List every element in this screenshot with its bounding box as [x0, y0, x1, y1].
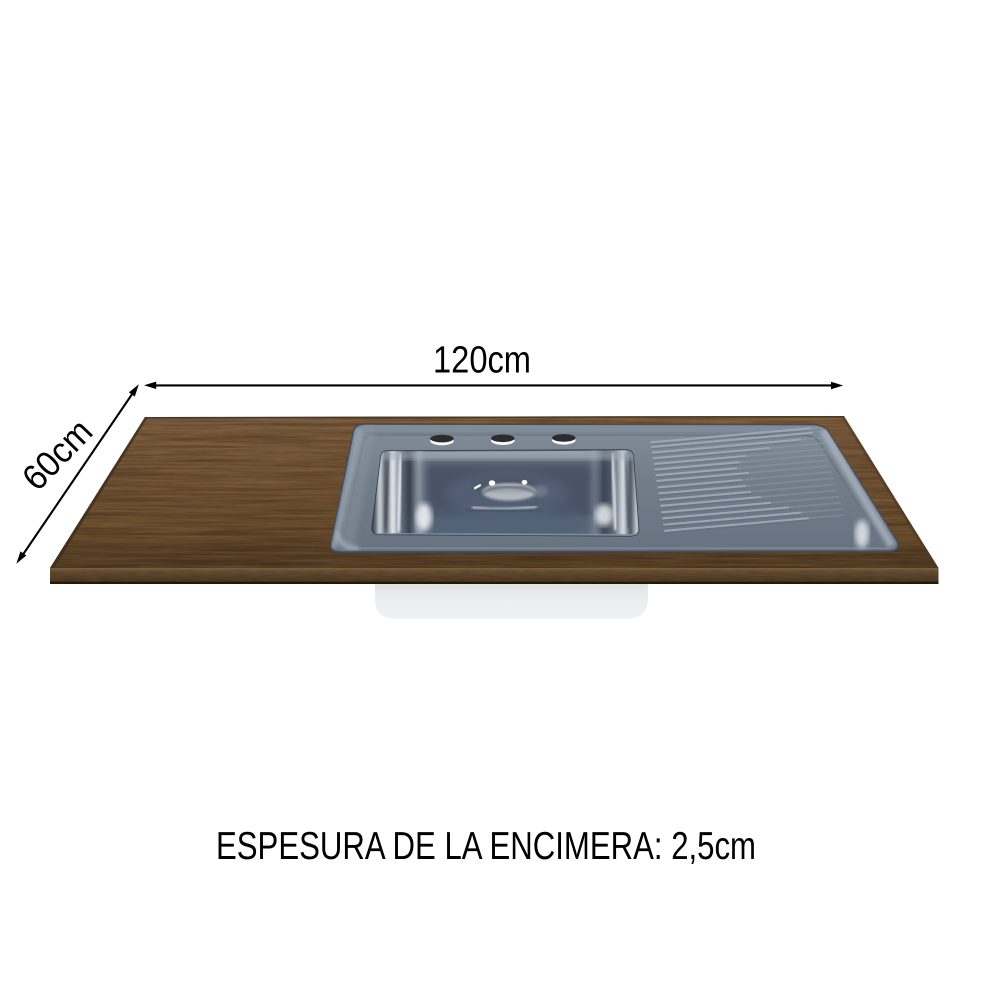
svg-text:120cm: 120cm: [433, 340, 531, 382]
svg-text:ESPESURA DE LA ENCIMERA: 2,5cm: ESPESURA DE LA ENCIMERA: 2,5cm: [216, 825, 756, 868]
